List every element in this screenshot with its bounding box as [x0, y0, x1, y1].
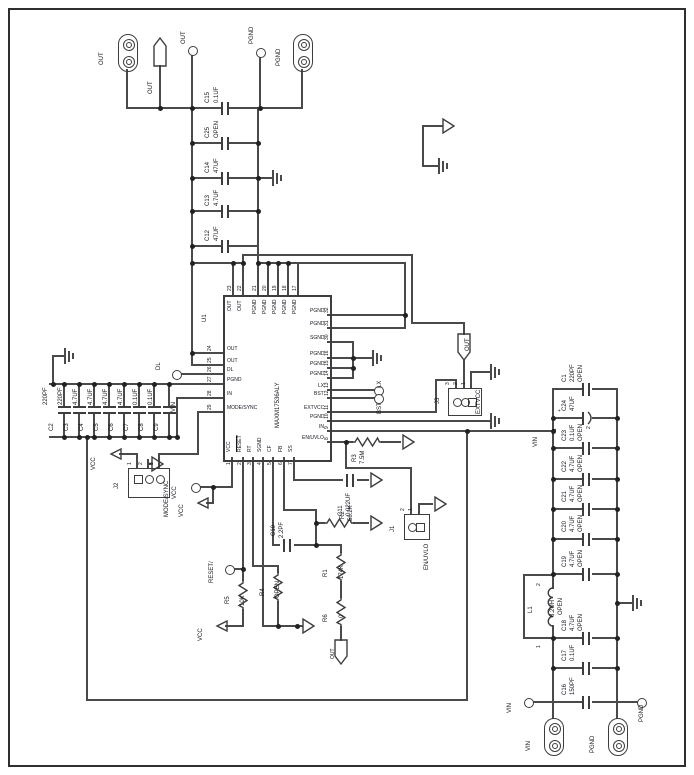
wire [191, 53, 193, 109]
label-right_bank-7-value: 4.7UF [570, 615, 577, 631]
wire [327, 397, 375, 399]
wire [552, 388, 582, 390]
label-headers-j3-pins-0: 3 [445, 382, 452, 385]
label-right_bank-0-ref: C1 [562, 374, 569, 382]
label-ic-pins_right-4-name: PGND [310, 361, 324, 368]
label-ic-pins_top-2-num: 21 [252, 285, 259, 291]
label-ic-pins_bottom-0-name: VCC [226, 441, 233, 452]
label-ic-pins_right-2-num: 30 [324, 334, 331, 340]
junction-dot [551, 477, 556, 482]
label-resistors-r6-value: 0 [339, 615, 346, 618]
wire [283, 457, 285, 511]
connector-pin-icon [616, 743, 622, 749]
label-ic-pins_right-5-num: 14 [324, 370, 331, 376]
capacitor-plate [582, 632, 584, 645]
testpoint-flag-out-top [153, 37, 167, 67]
label-headers-j2-pins-2: 3 [149, 462, 156, 465]
wire [229, 107, 303, 109]
label-headers-j2-pins-1: 2 [138, 462, 145, 465]
label-right_bank-0-extra: OPEN [578, 365, 585, 382]
capacitor-plate [163, 412, 176, 414]
capacitor-plate [133, 406, 146, 408]
wire [592, 388, 618, 390]
label-top_caps-4-value: 47UF [214, 226, 221, 241]
junction-dot [551, 446, 556, 451]
wire [523, 574, 554, 576]
junction-dot [190, 106, 195, 111]
wire [345, 441, 347, 469]
label-left_bank-2-ref: C4 [79, 423, 86, 431]
capacitor-plate [118, 412, 131, 414]
capacitor-plate [133, 412, 146, 414]
label-ic-pins_right-11-name: EN/UVLO [302, 435, 324, 442]
junction-dot [615, 601, 620, 606]
label-ic-pins_right-0-name: PGND [310, 308, 324, 315]
capacitor-plate [283, 539, 285, 552]
junction-dot [241, 567, 246, 572]
wire [159, 65, 161, 109]
label-left_bank-6-ref: C8 [139, 423, 146, 431]
vcc-power-arrow-icon [197, 497, 209, 509]
label-left_bank-3-value: 4.7UF [88, 389, 95, 405]
capacitor-plate [58, 406, 71, 408]
label-inductor-pin_bottom: 1 [536, 645, 543, 648]
connector-pin-icon [126, 42, 132, 48]
wire [404, 262, 406, 329]
junction-dot [190, 141, 195, 146]
junction-dot [190, 244, 195, 249]
wire [552, 667, 582, 669]
label-left_bank-1-value: 220PF [58, 387, 65, 405]
capacitor-plate [148, 412, 161, 414]
label-ic-pins_right-7-num: 12 [324, 390, 331, 396]
power-ground-icon [72, 353, 74, 359]
wire [136, 453, 138, 469]
label-ports-vin_conn: VIN [526, 741, 533, 751]
capacitor-plate [88, 412, 101, 414]
wire [422, 125, 443, 127]
wire [592, 573, 618, 575]
junction-dot [241, 261, 246, 266]
label-left_bank-5-ref: C7 [124, 423, 131, 431]
label-ic-pins_top-5-num: 18 [282, 285, 289, 291]
label-ic-pins_top-1-name: OUT [237, 300, 244, 311]
power-ground-icon [498, 369, 500, 375]
label-ic-pins_left-5-num: 29 [207, 404, 214, 410]
label-right_bank-5-ref: C20 [562, 521, 569, 532]
wire [191, 142, 221, 144]
power-ground-icon [372, 350, 374, 366]
junction-dot [465, 429, 470, 434]
label-right_bank-1-value: 47UF [570, 396, 577, 411]
junction-dot [615, 572, 620, 577]
junction-dot [107, 382, 112, 387]
label-ic-pins_right-1-name: PGND [310, 321, 324, 328]
label-ic-pins_right-11-num: 8 [324, 437, 331, 440]
label-resistors-r6-ref: R6 [323, 614, 330, 622]
label-resistors-r5-value: 10K [240, 595, 247, 606]
wire [353, 522, 369, 524]
wire [592, 701, 618, 703]
wire [176, 397, 224, 399]
label-ic-pins_right-6-num: 13 [324, 382, 331, 388]
vcc-power-arrow-icon [216, 620, 228, 632]
label-ic-pins_bottom-6-name: SS [288, 445, 295, 452]
label-resistors-r1-value: 174K [339, 565, 346, 579]
label-headers-j2-refdes: J2 [114, 483, 121, 489]
connector-pin-icon [552, 743, 558, 749]
junction-dot [175, 435, 180, 440]
wire [552, 573, 582, 575]
label-testpoints-bst: BST [377, 402, 384, 414]
label-ic-pins_top-0-num: 23 [227, 285, 234, 291]
junction-dot [62, 435, 67, 440]
wire [422, 165, 439, 167]
label-ic-pins_bottom-6-num: 7 [288, 462, 295, 465]
wire [242, 254, 413, 256]
label-ic-pins_right-7-name: BST [314, 391, 324, 398]
junction-dot [258, 106, 263, 111]
label-testpoints-out_tp_top: OUT [148, 81, 155, 94]
capacitor-plate [88, 406, 101, 408]
wire [592, 508, 618, 510]
label-top_caps-4-ref: C12 [205, 230, 212, 241]
header-pin-round-icon [145, 475, 154, 484]
label-left_bank-1-ref: C3 [64, 423, 71, 431]
vcc-power-arrow-icon [110, 448, 122, 460]
label-net_labels-vcc1: VCC [91, 457, 98, 470]
capacitor-plate [346, 474, 348, 487]
junction-dot [51, 382, 56, 387]
junction-dot [137, 382, 142, 387]
label-inductor-value: 8.2UH [550, 600, 557, 617]
capacitor-plate [221, 137, 223, 150]
wire [158, 453, 199, 455]
wire [283, 509, 317, 511]
junction-dot [190, 351, 195, 356]
capacitor-plate [227, 240, 229, 253]
label-ic-pins_top-0-name: OUT [227, 300, 234, 311]
wire [523, 574, 525, 639]
wire [272, 544, 280, 546]
capacitor-plate [588, 442, 590, 455]
junction-dot [137, 435, 142, 440]
wire [225, 625, 244, 627]
label-left_bank-5-value: 4.7UF [118, 389, 125, 405]
junction-dot [190, 209, 195, 214]
label-ic-pins_right-1-num: 31 [324, 320, 331, 326]
label-ic-pins_top-4-num: 19 [272, 285, 279, 291]
signal-ground-icon [434, 496, 447, 512]
junction-dot [615, 636, 620, 641]
label-top_caps-0-value: 0.1UF [214, 87, 221, 103]
capacitor-plate [582, 533, 584, 546]
label-ic-pins_bottom-1-num: 2 [237, 462, 244, 465]
label-ic-pins_bottom-5-num: 6 [278, 462, 285, 465]
power-ground-icon [68, 351, 70, 362]
wire [552, 701, 582, 703]
label-right_bank-3-value: 4.7UF [570, 456, 577, 472]
junction-dot [615, 537, 620, 542]
label-right_bank-5-extra: OPEN [578, 515, 585, 532]
wire [86, 436, 88, 701]
signal-ground-icon [370, 515, 383, 531]
label-ic-pins_right-9-name: PGND [310, 414, 324, 421]
wire [552, 538, 582, 540]
label-right_bank-3-ref: C22 [562, 461, 569, 472]
wire [252, 565, 279, 567]
wire [531, 701, 554, 703]
label-headers-j2-pins-0: 1 [127, 462, 134, 465]
label-ports-out_conn: OUT [99, 52, 106, 65]
label-left_bank-7-ref: C9 [154, 423, 161, 431]
wire [592, 447, 618, 449]
label-inductor-ref: L1 [528, 606, 535, 613]
label-right_bank-8-ref: C17 [562, 650, 569, 661]
label-ic-pins_right-6-name: LX [318, 383, 324, 390]
power-ground-icon [636, 598, 638, 609]
junction-dot [77, 382, 82, 387]
wire [592, 637, 618, 639]
wire [552, 637, 582, 639]
wire [592, 417, 618, 419]
label-testpoints-lx: LX [377, 381, 384, 388]
capacitor-plate [588, 503, 590, 516]
label-ic-pins_right-10-name: IN [319, 424, 324, 431]
wire [466, 430, 468, 701]
junction-dot [344, 440, 349, 445]
junction-dot [276, 261, 281, 266]
testpoint-out-icon [188, 46, 198, 56]
power-ground-icon [272, 170, 274, 186]
capacitor-plate [118, 406, 131, 408]
label-ic-pins_right-0-num: 32 [324, 307, 331, 313]
label-testpoints-vin_circle: VIN [507, 703, 514, 713]
label-ic-pins_bottom-2-name: RT [247, 445, 254, 452]
connector-pin-icon [301, 59, 307, 65]
wire [592, 538, 618, 540]
junction-dot [167, 382, 172, 387]
connector-pin-icon [616, 726, 622, 732]
junction-dot [152, 435, 157, 440]
label-testpoints-pgnd_circle: PGND [249, 27, 256, 44]
junction-dot [190, 176, 195, 181]
testpoint-dl-icon [172, 370, 182, 380]
signal-ground-icon [370, 472, 383, 488]
wire [242, 457, 244, 570]
wire [179, 373, 224, 375]
label-inductor-pin_top: 2 [536, 583, 543, 586]
capacitor-plate [221, 172, 223, 185]
wire [301, 69, 303, 109]
junction-dot [615, 666, 620, 671]
label-left_bank-0-value: 220PF [43, 387, 50, 405]
junction-dot [314, 543, 319, 548]
label-resistors-r1-ref: R1 [323, 569, 330, 577]
label-ic-pins_top-5-name: PGND [282, 300, 289, 314]
junction-dot [256, 141, 261, 146]
label-ports-pgnd_conn_bottom: PGND [590, 736, 597, 753]
wire [229, 245, 259, 247]
label-ic-pins_top-1-num: 22 [237, 285, 244, 291]
label-ic-refdes: U1 [202, 314, 209, 322]
label-top_caps-2-ref: C14 [205, 162, 212, 173]
capacitor-plate [221, 205, 223, 218]
label-resistors-r5-ref: R5 [225, 596, 232, 604]
junction-dot [551, 507, 556, 512]
label-testpoints-out_flag_mid: OUT [465, 338, 472, 351]
junction-dot [158, 106, 163, 111]
wire [191, 107, 193, 366]
wire [435, 379, 457, 381]
junction-dot [615, 477, 620, 482]
label-resistors-r4-value: OPEN [275, 581, 282, 598]
label-right_bank-5-value: 4.7UF [570, 516, 577, 532]
capacitor-plate [58, 412, 71, 414]
junction-dot [62, 382, 67, 387]
header-pin-square-icon [416, 523, 425, 532]
wire [229, 210, 259, 212]
capacitor-plate [73, 412, 86, 414]
wire [340, 581, 342, 598]
wire [345, 467, 412, 469]
label-ic-pins_left-0-num: 24 [207, 345, 214, 351]
power-ground-icon [640, 600, 642, 606]
junction-dot [286, 261, 291, 266]
capacitor-plate [227, 102, 229, 115]
capacitor-plate [582, 503, 584, 516]
label-right_bank-8-value: 0.1UF [570, 645, 577, 661]
label-right_bank-7-extra: OPEN [578, 614, 585, 631]
connector-pin-icon [126, 59, 132, 65]
label-ic-pins_left-4-name: IN [227, 391, 232, 398]
wire [86, 699, 468, 701]
label-ic-pins_top-6-name: PGND [292, 300, 299, 314]
label-net_labels-vin_rail: VIN [533, 437, 540, 447]
label-right_bank-6-value: 4.7UF [570, 551, 577, 567]
label-right_bank-1-pin2: 2 [586, 426, 593, 429]
label-ic-pins_top-6-num: 17 [292, 285, 299, 291]
label-right_bank-9-ref: C16 [562, 684, 569, 695]
power-ground-icon [64, 348, 66, 364]
power-ground-icon [490, 364, 492, 380]
wire [257, 107, 259, 264]
label-small_caps-c11-value: 0.022UF [346, 493, 353, 516]
label-top_caps-3-value: 4.7UF [214, 190, 221, 206]
wire [381, 441, 401, 443]
wire [252, 457, 254, 567]
label-testpoints-out_circle: OUT [181, 31, 188, 44]
label-left_bank-6-value: 0.1UF [133, 389, 140, 405]
label-headers-j1-refdes: J1 [390, 526, 397, 532]
connector-pin-icon [552, 726, 558, 732]
label-ic-pins_left-2-num: 26 [207, 366, 214, 372]
capacitor-plate [227, 205, 229, 218]
wire [293, 479, 343, 481]
capacitor-plate [588, 473, 590, 486]
wire [315, 509, 317, 546]
label-ic-pins_right-3-name: PGND [310, 351, 324, 358]
wire [411, 322, 465, 324]
label-headers-j1-label: EN/UVLO [424, 544, 431, 570]
capacitor-plate [227, 172, 229, 185]
label-resistors-r3-value: 7.5M [360, 451, 367, 464]
junction-dot [551, 666, 556, 671]
junction-dot [295, 624, 300, 629]
label-ic-pins_bottom-5-name: FB [278, 446, 285, 452]
label-left_bank-7-value: 0.1UF [148, 389, 155, 405]
wire [422, 125, 424, 167]
label-right_bank-2-extra: OPEN [578, 424, 585, 441]
label-ic-pins_right-8-num: 11 [324, 405, 331, 410]
label-testpoints-out_flag_bottom: OUT [330, 648, 337, 659]
wire [357, 479, 369, 481]
capacitor-plate [352, 474, 354, 487]
label-ic-pins_left-4-num: 28 [207, 390, 214, 396]
power-ground-icon [438, 158, 440, 174]
wire [259, 55, 261, 109]
wire [191, 262, 244, 264]
label-resistors-r3-ref: R3 [352, 454, 359, 462]
capacitor-plate [588, 632, 590, 645]
wire [418, 503, 433, 505]
wire [470, 371, 472, 389]
testpoint-vcc-icon [191, 483, 201, 493]
label-right_bank-6-ref: C19 [562, 556, 569, 567]
label-left_bank-3-ref: C5 [94, 423, 101, 431]
wire [327, 314, 406, 316]
capacitor-plate [588, 533, 590, 546]
junction-dot [92, 382, 97, 387]
label-top_caps-2-value: 47UF [214, 158, 221, 173]
wire [552, 508, 582, 510]
wire [262, 457, 264, 627]
wire [616, 388, 618, 703]
power-ground-icon [376, 353, 378, 364]
power-ground-icon [446, 163, 448, 169]
wire [523, 637, 554, 639]
power-ground-icon [490, 413, 492, 429]
junction-dot [190, 261, 195, 266]
label-ic-pins_left-0-name: OUT [227, 346, 238, 353]
label-right_bank-4-value: 4.7UF [570, 486, 577, 502]
signal-ground-icon [402, 434, 415, 450]
label-ic-pins_right-10-num: 9 [324, 426, 331, 429]
label-ic-pins_left-3-name: PGND [227, 377, 241, 384]
capacitor-plate [289, 539, 291, 552]
junction-dot [351, 356, 356, 361]
label-resistors-r4-ref: R4 [260, 588, 267, 596]
wire [197, 411, 199, 455]
capacitor-plate [588, 662, 590, 675]
label-testpoints-reset: RESET/ [209, 561, 216, 583]
testpoint-reset-icon [225, 565, 235, 575]
label-ic-part: MAXM17536ALY [275, 382, 282, 428]
label-right_bank-0-value: 220PF [570, 364, 577, 382]
label-right_bank-3-extra: OPEN [578, 455, 585, 472]
power-ground-icon [280, 175, 282, 181]
junction-dot [351, 366, 356, 371]
label-right_bank-2-ref: C23 [562, 430, 569, 441]
capacitor-plate [588, 568, 590, 581]
capacitor-plate [221, 240, 223, 253]
wire [616, 701, 618, 719]
power-ground-icon [498, 418, 500, 424]
wire [168, 383, 170, 407]
signal-ground-icon [442, 118, 455, 134]
wire [435, 379, 437, 413]
junction-dot [551, 537, 556, 542]
